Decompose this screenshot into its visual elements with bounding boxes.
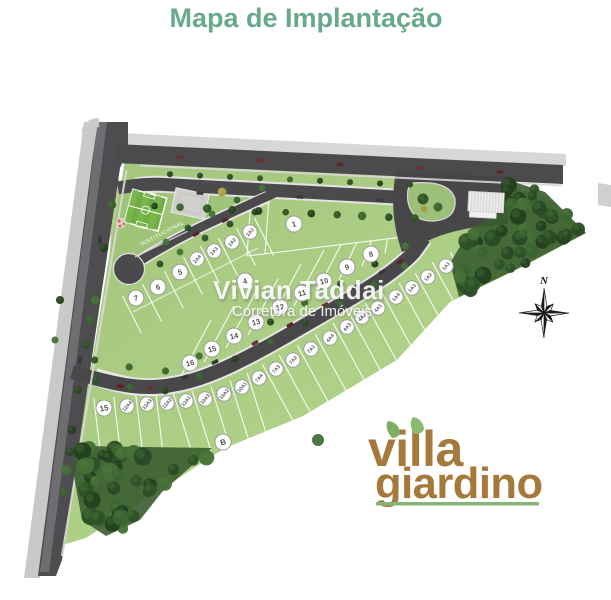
svg-text:Vivian Taddai: Vivian Taddai — [213, 275, 385, 305]
svg-text:Mapa de Implantação: Mapa de Implantação — [169, 3, 442, 33]
svg-text:N: N — [539, 275, 549, 287]
svg-text:giardino: giardino — [375, 460, 543, 508]
svg-text:Corretora de Imóveis: Corretora de Imóveis — [232, 303, 372, 320]
